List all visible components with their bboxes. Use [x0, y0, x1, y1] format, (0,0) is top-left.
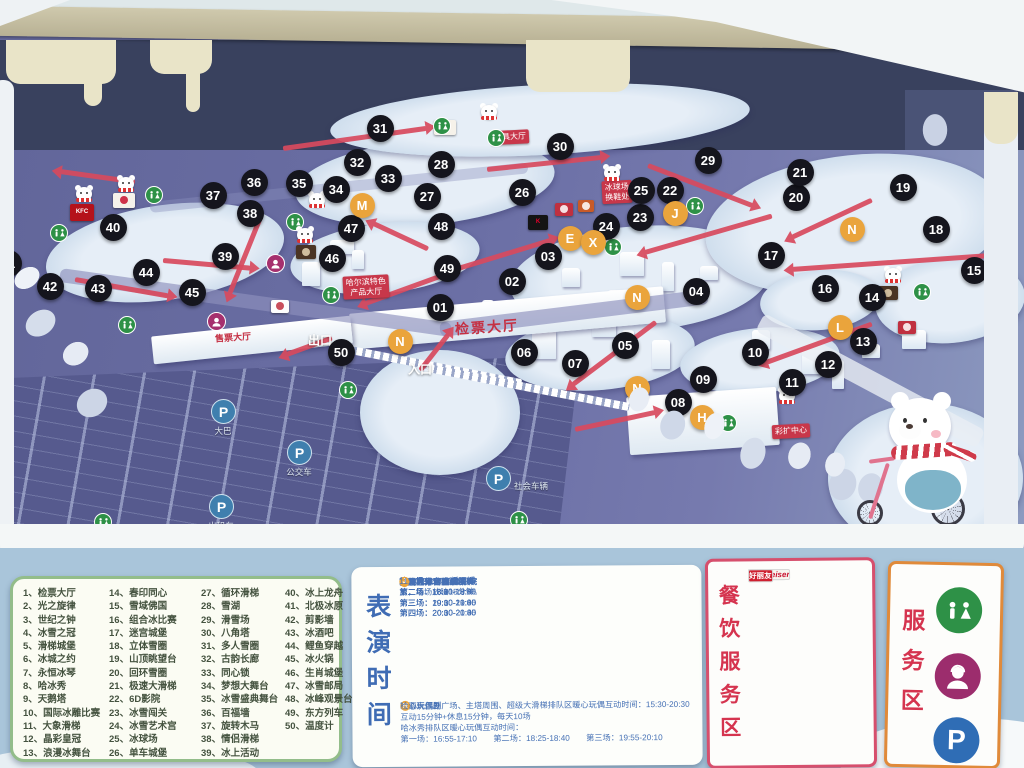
legend-item: 15、雪域佛国 — [109, 600, 177, 613]
restroom-icon — [487, 129, 505, 147]
legend-card: 1、检票大厅2、光之旋律3、世纪之钟4、冰雪之冠5、滑梯城堡6、冰城之约7、永恒… — [10, 576, 342, 762]
legend-item: 8、哈冰秀 — [23, 680, 100, 693]
map-marker-48: 48 — [428, 213, 455, 240]
map-marker-11: 11 — [779, 369, 806, 396]
bear-eye — [608, 171, 610, 173]
legend-item: 35、冰雪盛典舞台 — [201, 693, 278, 706]
map-marker-32: 32 — [344, 149, 371, 176]
map-marker-10: 10 — [742, 339, 769, 366]
legend-item: 27、循环滑梯 — [201, 587, 278, 600]
map-marker-31: 31 — [367, 115, 394, 142]
map-letter-X: X — [581, 230, 606, 255]
legend-item: 17、迷宫城堡 — [109, 627, 177, 640]
legend-item: 13、浪漫冰舞台 — [23, 747, 100, 760]
legend-item: 16、组合冰比赛 — [109, 614, 177, 627]
legend-item: 2、光之旋律 — [23, 600, 100, 613]
map-marker-47: 47 — [338, 215, 365, 242]
service-title: 服务区 — [898, 600, 929, 721]
legend-item: 1、检票大厅 — [23, 587, 100, 600]
legend-item: 5、滑梯城堡 — [23, 640, 100, 653]
legend-item: 41、北极冰原 — [285, 600, 353, 613]
legend-item: 12、晶彩皇冠 — [23, 733, 100, 746]
map-marker-06: 06 — [511, 339, 538, 366]
map-marker-35: 35 — [286, 170, 313, 197]
map-marker-43: 43 — [85, 275, 112, 302]
map-letter-E: E — [558, 226, 583, 251]
restroom-icon — [913, 283, 931, 301]
route-arrow — [373, 222, 429, 251]
show-time: 11:00-21:00，循环播 — [399, 576, 482, 587]
legend-item: 40、冰上龙舟 — [285, 587, 353, 600]
legend-item: 42、剪影墙 — [285, 614, 353, 627]
map-marker-21: 21 — [787, 159, 814, 186]
legend-item: 14、春印同心 — [109, 587, 177, 600]
show-time: 放，每场放映15分钟。 — [399, 587, 482, 598]
parking-icon: P — [211, 399, 236, 424]
puppet-note-line: 第一场：16:55-17:10 第二场：18:25-18:40 第三场：19:5… — [400, 732, 696, 745]
map-letter-M: M — [350, 193, 375, 218]
map-marker-37: 37 — [200, 182, 227, 209]
map-marker-27: 27 — [414, 183, 441, 210]
restroom-icon — [118, 316, 136, 334]
parking-icon: P — [486, 466, 511, 491]
bear-eye — [895, 273, 897, 275]
bear-ear — [891, 392, 909, 410]
parking-label: 公交车 — [286, 466, 312, 478]
legend-item: 44、鲤鱼穿越 — [285, 640, 353, 653]
map-marker-19: 19 — [890, 174, 917, 201]
restroom-icon — [50, 224, 68, 242]
bear-overalls — [905, 470, 961, 510]
polar-bear-icon — [883, 266, 903, 284]
customer-service-icon — [266, 254, 285, 273]
map-marker-36: 36 — [241, 169, 268, 196]
map-marker-50: 50 — [328, 339, 355, 366]
service-area-card: 服务区 P — [884, 561, 1004, 768]
map-marker-34: 34 — [323, 176, 350, 203]
legend-item: 3、世纪之钟 — [23, 614, 100, 627]
restroom-icon — [686, 197, 704, 215]
bear-eye — [491, 110, 493, 112]
restroom-icon — [322, 286, 340, 304]
map-letter-L: L — [828, 315, 853, 340]
bear-scarf — [885, 279, 901, 283]
legend-item: 32、古韵长廊 — [201, 653, 278, 666]
map-marker-17: 17 — [758, 242, 785, 269]
map-marker-29: 29 — [695, 147, 722, 174]
map-marker-30: 30 — [547, 133, 574, 160]
board-snow-edge-left — [0, 80, 14, 550]
legend-item: 49、东方列车 — [285, 707, 353, 720]
map-marker-20: 20 — [783, 184, 810, 211]
snow-drip-decoration — [186, 40, 200, 112]
legend-item: 24、冰雪艺术宫 — [109, 720, 177, 733]
bear-eye — [485, 110, 487, 112]
map-marker-26: 26 — [509, 179, 536, 206]
schedule-grid: M梦想大舞台表演第一场：17:30-18:00第二场：18:30-19:00第三… — [399, 575, 696, 695]
map-marker-01: 01 — [427, 294, 454, 321]
board-snow-edge-right — [984, 92, 1018, 552]
kfc-map-sign: KFC — [70, 204, 94, 221]
polar-bear-icon — [479, 103, 499, 121]
map-letter-J: J — [663, 201, 688, 226]
legend-item: 18、立体雪圈 — [109, 640, 177, 653]
map-marker-38: 38 — [237, 200, 264, 227]
bear-eye — [122, 182, 124, 184]
haoliyou-logo: 好丽友 — [748, 569, 773, 582]
legend-item: 28、雪湖 — [201, 600, 278, 613]
map-letter-N: N — [388, 329, 413, 354]
legend-item: 39、冰上活动 — [201, 747, 278, 760]
entrance-label: 入口 — [408, 361, 432, 378]
bear-cheek — [931, 430, 941, 438]
legend-item: 23、冰雪闯关 — [109, 707, 177, 720]
bear-eye — [319, 198, 321, 200]
map-marker-09: 09 — [690, 366, 717, 393]
map-marker-12: 12 — [815, 351, 842, 378]
snow-drip-decoration — [150, 40, 212, 74]
bear-eye — [86, 192, 88, 194]
bear-ear — [933, 392, 951, 410]
bicycle-handlebar — [869, 456, 895, 464]
bear-scarf — [779, 400, 795, 404]
legend-item: 38、情侣滑梯 — [201, 733, 278, 746]
map-marker-04: 04 — [683, 278, 710, 305]
snack-map-sign — [296, 245, 316, 259]
map-letter-N: N — [840, 217, 865, 242]
map-marker-18: 18 — [923, 216, 950, 243]
pizza-hut-map-sign — [113, 193, 135, 208]
legend-item: 33、同心锁 — [201, 667, 278, 680]
legend-item: 21、极速大滑梯 — [109, 680, 177, 693]
restaurant-map-sign — [578, 200, 594, 212]
dining-title: 餐饮服务区 — [716, 580, 744, 745]
performance-schedule-card: 表演时间 M梦想大舞台表演第一场：17:30-18:00第二场：18:30-19… — [351, 565, 702, 767]
legend-column: 40、冰上龙舟41、北极冰原42、剪影墙43、冰酒吧44、鲤鱼穿越45、冰火锅4… — [285, 587, 353, 733]
customer-service-icon — [934, 653, 981, 700]
route-arrow — [487, 155, 602, 171]
restroom-icon — [604, 238, 622, 256]
legend-item: 36、百福墙 — [201, 707, 278, 720]
legend-item: 11、大象滑梯 — [23, 720, 100, 733]
map-marker-28: 28 — [428, 151, 455, 178]
bear-scarf — [118, 188, 134, 192]
ticket-sales-hall-label: 售票大厅 — [215, 329, 252, 344]
bear-scarf — [604, 177, 620, 181]
legend-item: 6、冰城之约 — [23, 653, 100, 666]
route-arrow — [283, 126, 427, 151]
bear-scarf — [481, 116, 497, 120]
legend-item: 31、多人雪圈 — [201, 640, 278, 653]
ticket-check-hall-label: 检票大厅 — [454, 315, 519, 339]
parking-icon: P — [209, 494, 234, 519]
parking-label: 大巴 — [214, 425, 231, 437]
map-marker-14: 14 — [859, 284, 886, 311]
map-marker-39: 39 — [212, 243, 239, 270]
bear-nose — [906, 424, 913, 429]
schedule-title: 表演时间 — [363, 589, 394, 733]
bear-scarf — [309, 204, 325, 208]
map-marker-46: 46 — [319, 245, 346, 272]
restroom-icon — [145, 186, 163, 204]
map-marker-40: 40 — [100, 214, 127, 241]
bear-eye — [783, 394, 785, 396]
legend-item: 37、旋转木马 — [201, 720, 278, 733]
legend-column: 1、检票大厅2、光之旋律3、世纪之钟4、冰雪之冠5、滑梯城堡6、冰城之约7、永恒… — [23, 587, 100, 760]
bear-eye — [614, 171, 616, 173]
bear-eye — [301, 233, 303, 235]
parking-icon: P — [933, 717, 980, 764]
map-marker-45: 45 — [179, 279, 206, 306]
legend-item: 20、回环雪圈 — [109, 667, 177, 680]
parking-icon: P — [287, 440, 312, 465]
icecream-map-sign — [271, 300, 289, 313]
customer-service-icon — [207, 312, 226, 331]
bear-scarf — [297, 239, 313, 243]
map-marker-33: 33 — [375, 165, 402, 192]
bear-eye — [889, 273, 891, 275]
legend-item: 43、冰酒吧 — [285, 627, 353, 640]
legend-item: 29、滑雪场 — [201, 614, 278, 627]
bear-eye — [307, 233, 309, 235]
legend-item: 45、冰火锅 — [285, 653, 353, 666]
map-marker-02: 02 — [499, 268, 526, 295]
map-marker-03: 03 — [535, 243, 562, 270]
restroom-icon — [339, 381, 357, 399]
map-sign: 哈尔滨特色 产品大厅 — [342, 274, 389, 299]
map-marker-16: 16 — [812, 275, 839, 302]
legend-item: 25、冰球场 — [109, 733, 177, 746]
bear-eye — [313, 198, 315, 200]
puppet-show-note: N暖心玩偶剧检票大厅外广场、主塔周围、超级大滑梯排队区暖心玩偶互动时间：15:3… — [400, 699, 696, 745]
legend-item: 46、生肖城堡 — [285, 667, 353, 680]
restroom-icon — [433, 117, 451, 135]
legend-item: 30、八角塔 — [201, 627, 278, 640]
schedule-block: J极限飞球动感6D影院11:00-21:00，循环播放，每场放映15分钟。 — [399, 576, 482, 598]
show-time: 第三场：20:10-21:00 — [400, 598, 477, 609]
snow-drip-decoration — [84, 40, 102, 106]
legend-item: 19、山顶眺望台 — [109, 653, 177, 666]
map-marker-49: 49 — [434, 255, 461, 282]
legend-item: 48、冰峰观景台 — [285, 693, 353, 706]
legend-column: 14、春印同心15、雪域佛国16、组合冰比赛17、迷宫城堡18、立体雪圈19、山… — [109, 587, 177, 760]
restroom-icon — [936, 587, 983, 634]
snow-drip-decoration — [526, 40, 630, 92]
legend-item: 4、冰雪之冠 — [23, 627, 100, 640]
photo-of-ice-snow-park-map-sign: KFCK雪具大厅冰球场 换鞋处哈尔滨特色 产品大厅彩扩中心检票大厅售票大厅出口入… — [0, 0, 1024, 768]
show-time: 第四场：20:30-20:45 — [400, 609, 477, 620]
polar-bear-icon — [602, 164, 622, 182]
bear-eye — [80, 192, 82, 194]
bear-scarf — [76, 198, 92, 202]
map-marker-23: 23 — [627, 204, 654, 231]
route-arrow — [644, 214, 772, 255]
legend-item: 47、冰雪邮局 — [285, 680, 353, 693]
map-marker-13: 13 — [850, 328, 877, 355]
map-marker-44: 44 — [133, 259, 160, 286]
map-marker-05: 05 — [612, 332, 639, 359]
legend-item: 7、永恒冰琴 — [23, 667, 100, 680]
polar-bear-icon — [116, 175, 136, 193]
legend-item: 22、6D影院 — [109, 693, 177, 706]
restaurant-map-sign — [898, 321, 916, 334]
legend-column: 27、循环滑梯28、雪湖29、滑雪场30、八角塔31、多人雪圈32、古韵长廊33… — [201, 587, 278, 760]
legend-item: 26、单车城堡 — [109, 747, 177, 760]
restaurant-map-sign — [555, 203, 573, 216]
map-marker-22: 22 — [657, 177, 684, 204]
polar-bear-icon — [295, 226, 315, 244]
map-marker-25: 25 — [628, 177, 655, 204]
dining-services-card: 餐饮服务区 KFCPizza HutKBudweiser好丽友 — [705, 557, 877, 768]
legend-item: 10、国际冰雕比赛 — [23, 707, 100, 720]
k-coffee-map-sign: K — [528, 215, 548, 230]
parking-label: 社会车辆 — [514, 480, 548, 492]
legend-item: 50、温度计 — [285, 720, 353, 733]
bear-eye — [923, 418, 927, 423]
legend-item: 34、梦想大舞台 — [201, 680, 278, 693]
bear-eye — [128, 182, 130, 184]
snow-drip-decoration — [984, 92, 1018, 144]
polar-bear-icon — [74, 185, 94, 203]
map-marker-07: 07 — [562, 350, 589, 377]
restaurant-logo-grid: KFCPizza HutKBudweiser好丽友 — [748, 568, 872, 761]
legend-item: 9、天鹅塔 — [23, 693, 100, 706]
map-letter-N: N — [625, 285, 650, 310]
